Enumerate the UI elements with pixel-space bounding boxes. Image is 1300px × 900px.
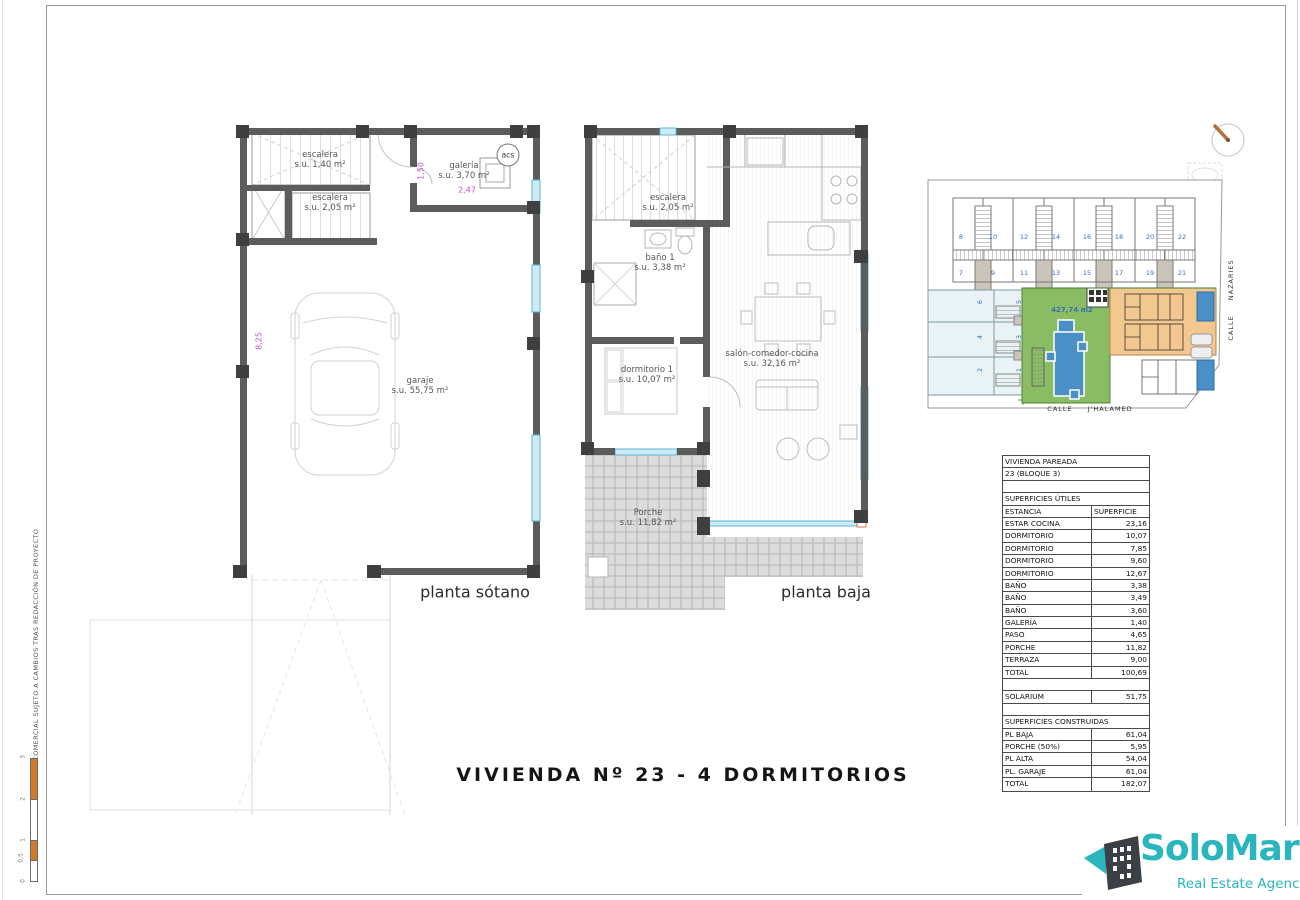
table-cell-value: 3,49	[1091, 592, 1149, 603]
table-cell-value: 23,16	[1091, 518, 1149, 529]
table-row: 23 (BLOQUE 3)	[1003, 468, 1149, 480]
table-cell-value: 11,82	[1091, 642, 1149, 653]
table-cell-label: PORCHE (50%)	[1003, 741, 1091, 752]
room-label-bano: baño 1s.u. 3,38 m²	[634, 253, 685, 273]
table-cell	[1003, 679, 1149, 690]
table-cell: VIVIENDA PAREADA	[1003, 456, 1149, 467]
table-row: DORMITORIO10,07	[1003, 530, 1149, 542]
scale-bar	[30, 758, 38, 882]
dimension-galeria-width: 2,47	[458, 186, 476, 195]
scale-seg	[31, 841, 37, 861]
table-cell-label: SOLARIUM	[1003, 691, 1091, 702]
dimension-garage-height: 8,25	[255, 332, 264, 350]
acs-label: acs	[502, 151, 515, 160]
margin-note: PLANO COMERCIAL SUJETO A CAMBIOS TRAS RE…	[32, 529, 40, 788]
table-cell-label: DORMITORIO	[1003, 543, 1091, 554]
table-row: PORCHE (50%)5,95	[1003, 741, 1149, 753]
table-cell-label: GALERÍA	[1003, 617, 1091, 628]
table-row: BAÑO3,38	[1003, 580, 1149, 592]
table-row: SUPERFICIES ÚTILES	[1003, 493, 1149, 505]
dimension-galeria-height: 1,50	[417, 162, 426, 180]
table-cell-label: DORMITORIO	[1003, 568, 1091, 579]
table-cell-label: BAÑO	[1003, 605, 1091, 616]
basement-plan-drawing	[80, 125, 550, 825]
table-cell-label: PORCHE	[1003, 642, 1091, 653]
room-label-escalera2: escaleras.u. 2,05 m²	[304, 193, 355, 213]
table-cell-value: 9,00	[1091, 654, 1149, 665]
scale-seg	[31, 800, 37, 841]
scale-label: 0,5	[18, 853, 25, 863]
table-cell-value: 5,95	[1091, 741, 1149, 752]
table-cell-value: 61,04	[1091, 729, 1149, 740]
agency-name: SoloMar	[1140, 828, 1299, 869]
paper-edge-right	[1297, 0, 1298, 900]
table-row: ESTANCIASUPERFICIE	[1003, 506, 1149, 518]
table-row: DORMITORIO12,67	[1003, 568, 1149, 580]
table-cell	[1003, 704, 1149, 715]
agency-logo: SoloMar Real Estate Agency	[1082, 826, 1300, 900]
table-cell: SUPERFICIES CONSTRUIDAS	[1003, 716, 1149, 727]
table-cell-label: PL. GARAJE	[1003, 766, 1091, 777]
table-row: TOTAL182,07	[1003, 778, 1149, 790]
table-row	[1003, 679, 1149, 691]
table-cell-value: 61,04	[1091, 766, 1149, 777]
ground-plan-drawing	[560, 125, 880, 615]
street-label-right: CALLE NAZARIES	[1227, 259, 1235, 340]
table-cell-label: PL BAJA	[1003, 729, 1091, 740]
table-row: BAÑO3,60	[1003, 605, 1149, 617]
ground-caption: planta baja	[781, 583, 871, 602]
site-plot-area-label: 427,74 m2	[1051, 306, 1093, 314]
sheet-title: VIVIENDA Nº 23 - 4 DORMITORIOS	[456, 764, 909, 786]
table-cell-value: 10,07	[1091, 530, 1149, 541]
table-row: PASO4,65	[1003, 629, 1149, 641]
table-row: TOTAL100,69	[1003, 667, 1149, 679]
table-cell-value: 54,04	[1091, 753, 1149, 764]
room-label-garaje: garajes.u. 55,75 m²	[392, 376, 449, 396]
table-row: DORMITORIO7,85	[1003, 543, 1149, 555]
table-cell-value: 4,65	[1091, 629, 1149, 640]
table-row: PORCHE11,82	[1003, 642, 1149, 654]
table-row: SOLARIUM51,75	[1003, 691, 1149, 703]
scale-label: 3	[20, 755, 27, 759]
table-cell-label: ESTANCIA	[1003, 506, 1091, 517]
table-cell: 23 (BLOQUE 3)	[1003, 468, 1149, 479]
table-row: BAÑO3,49	[1003, 592, 1149, 604]
table-cell-value: 7,85	[1091, 543, 1149, 554]
agency-building-icon	[1082, 830, 1144, 898]
table-cell-value: 12,67	[1091, 568, 1149, 579]
scale-label: 1	[20, 838, 27, 842]
table-cell-label: ESTAR COCINA	[1003, 518, 1091, 529]
table-row: DORMITORIO9,60	[1003, 555, 1149, 567]
table-cell-value: 3,60	[1091, 605, 1149, 616]
scale-seg	[31, 861, 37, 881]
table-cell-label: TOTAL	[1003, 667, 1091, 678]
table-row: SUPERFICIES CONSTRUIDAS	[1003, 716, 1149, 728]
site-plan-drawing	[920, 110, 1255, 430]
room-label-porche: Porches.u. 11,82 m²	[620, 508, 677, 528]
room-label-dormitorio: dormitorio 1s.u. 10,07 m²	[619, 365, 676, 385]
compass-icon	[1212, 124, 1244, 156]
table-cell-label: DORMITORIO	[1003, 555, 1091, 566]
table-row: PL ALTA54,04	[1003, 753, 1149, 765]
table-cell-label: PASO	[1003, 629, 1091, 640]
room-label-salon: salón-comedor-cocinas.u. 32,16 m²	[725, 349, 818, 369]
room-label-escalera-gf: escaleras.u. 2,05 m²	[642, 193, 693, 213]
table-cell-value: 1,40	[1091, 617, 1149, 628]
table-row	[1003, 704, 1149, 716]
agency-tagline: Real Estate Agency	[1177, 876, 1300, 892]
room-label-escalera1: escaleras.u. 1,40 m²	[294, 150, 345, 170]
table-row	[1003, 481, 1149, 493]
table-cell: SUPERFICIES ÚTILES	[1003, 493, 1149, 504]
table-row: ESTAR COCINA23,16	[1003, 518, 1149, 530]
table-cell-label: DORMITORIO	[1003, 530, 1091, 541]
table-cell-value: 100,69	[1091, 667, 1149, 678]
table-cell-label: TOTAL	[1003, 778, 1091, 790]
basement-caption: planta sótano	[420, 583, 530, 602]
table-cell-value: 9,60	[1091, 555, 1149, 566]
table-row: PL BAJA61,04	[1003, 729, 1149, 741]
scale-seg	[31, 759, 37, 800]
room-label-galeria: galerías.u. 3,70 m²	[438, 161, 489, 181]
table-row: TERRAZA9,00	[1003, 654, 1149, 666]
scale-label: 2	[20, 797, 27, 801]
table-cell-value: SUPERFICIE	[1091, 506, 1149, 517]
paper-edge-left	[2, 0, 3, 900]
table-cell-label: BAÑO	[1003, 592, 1091, 603]
table-cell-label: BAÑO	[1003, 580, 1091, 591]
table-cell	[1003, 481, 1149, 492]
street-label-bottom: CALLE J'HALAMED	[1047, 405, 1132, 413]
table-cell-value: 51,75	[1091, 691, 1149, 702]
table-row: PL. GARAJE61,04	[1003, 766, 1149, 778]
scale-label: 0	[20, 879, 27, 883]
table-row: VIVIENDA PAREADA	[1003, 456, 1149, 468]
table-cell-value: 182,07	[1091, 778, 1149, 790]
table-cell-value: 3,38	[1091, 580, 1149, 591]
table-cell-label: PL ALTA	[1003, 753, 1091, 764]
table-cell-label: TERRAZA	[1003, 654, 1091, 665]
table-row: GALERÍA1,40	[1003, 617, 1149, 629]
surface-table: VIVIENDA PAREADA23 (BLOQUE 3)SUPERFICIES…	[1002, 455, 1150, 792]
